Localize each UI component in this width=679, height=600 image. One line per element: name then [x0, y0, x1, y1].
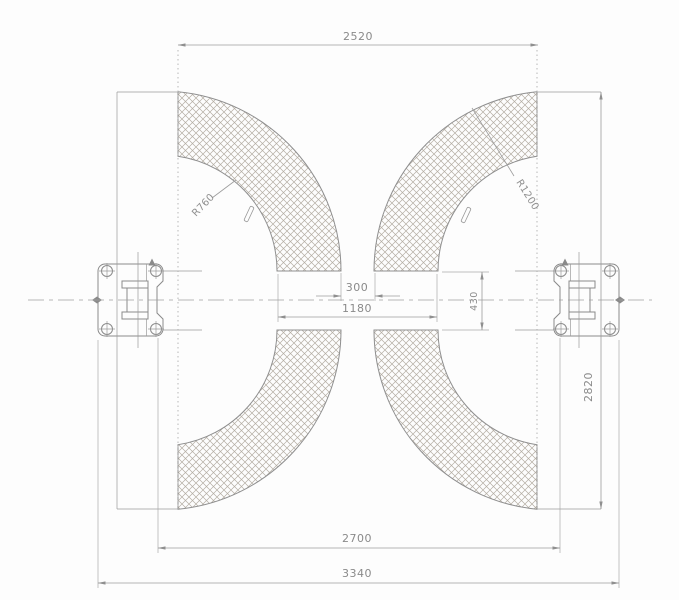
dim-pivot-spacing-label: 430 [469, 291, 480, 311]
dim-overall-width-label: 3340 [342, 567, 372, 580]
left-post [92, 259, 164, 338]
left-column-flange-bottom [122, 312, 148, 319]
slash-marker-left-icon [244, 206, 254, 222]
radius-inner-label: R760 [190, 192, 217, 219]
dim-top-width-label: 2520 [343, 30, 373, 43]
left-plate-top-arrow-icon [149, 259, 156, 266]
dim-sweep-depth-label: 2820 [582, 372, 595, 402]
left-column-flange-top [122, 281, 148, 288]
dimensions: 2520 300 1180 430 2820 [98, 30, 619, 588]
dim-arm-gap: 300 [316, 273, 400, 301]
sweep-region-lower-right [374, 330, 537, 509]
radius-callout-inner: R760 [190, 180, 236, 219]
sweep-region-upper-right [374, 92, 537, 271]
drawing-canvas: 2520 300 1180 430 2820 [0, 0, 679, 600]
dim-pivot-spacing: 430 [442, 272, 489, 330]
arm-sweep-regions [178, 92, 537, 509]
dim-post-span-label: 2700 [342, 532, 372, 545]
dim-top-width: 2520 [178, 30, 538, 45]
right-column-flange-bottom [569, 312, 595, 319]
dim-overall-width: 3340 [98, 340, 619, 588]
dim-inner-span-label: 1180 [342, 302, 372, 315]
lift-plan-drawing: 2520 300 1180 430 2820 [0, 0, 679, 600]
dim-arm-gap-label: 300 [346, 281, 369, 294]
sweep-region-upper-left [178, 92, 341, 271]
right-column-flange-top [569, 281, 595, 288]
right-post [553, 259, 625, 338]
slash-marker-right-icon [461, 207, 471, 223]
right-plate-top-arrow-icon [562, 259, 569, 266]
sweep-region-lower-left [178, 330, 341, 509]
